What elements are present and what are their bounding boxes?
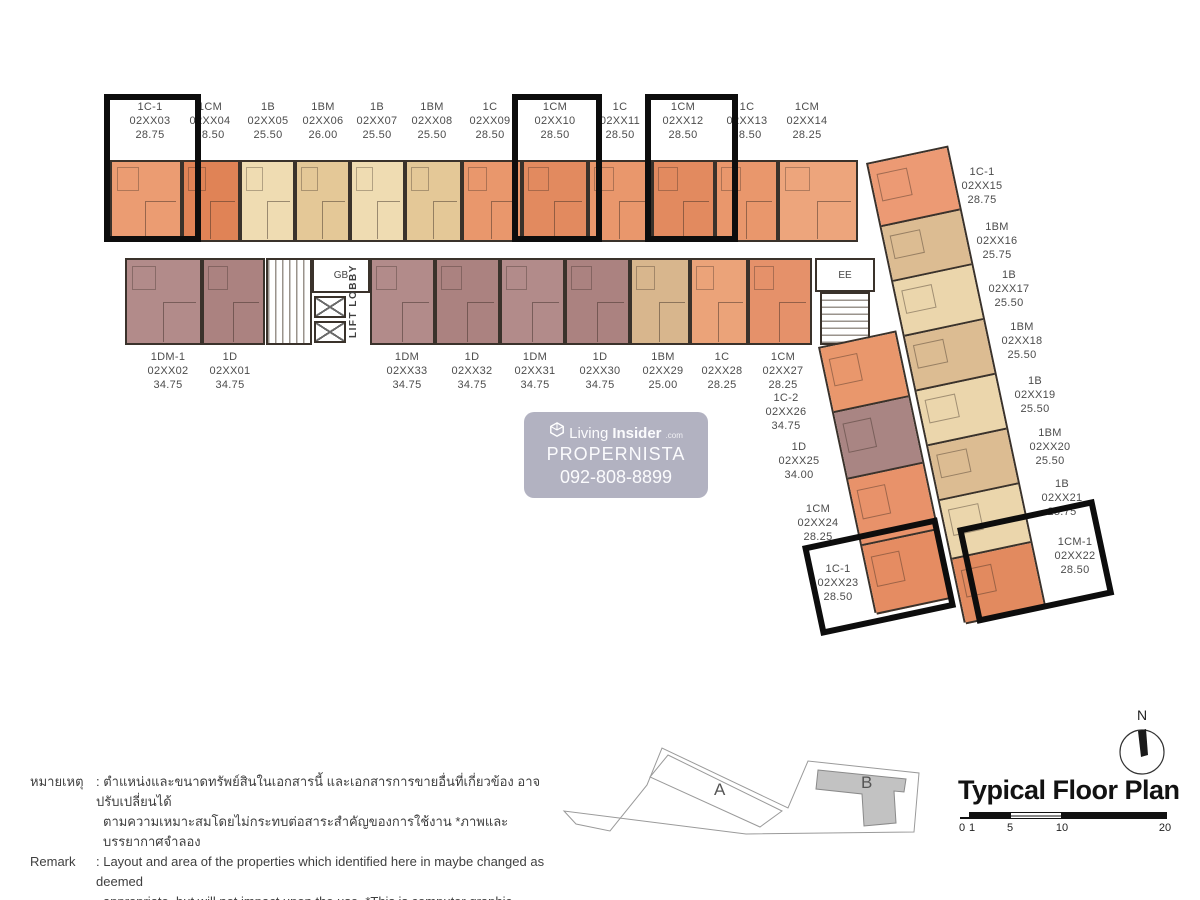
scale-tick: 20	[1159, 822, 1171, 834]
building-b-label: B	[861, 773, 872, 792]
unit-02XX02	[125, 258, 202, 345]
unit-area: 34.75	[210, 378, 251, 392]
unit-code: 02XX31	[515, 364, 556, 378]
highlight-box	[512, 94, 602, 242]
thai-note-line2: ตามความเหมาะสมโดยไม่กระทบต่อสาระสำคัญของ…	[96, 812, 550, 852]
unit-area: 25.50	[1015, 402, 1056, 416]
compass-icon	[1112, 722, 1172, 778]
unit-area: 34.75	[452, 378, 493, 392]
brand-bold: Insider	[612, 425, 661, 442]
unit-code: 02XX08	[412, 114, 453, 128]
unit-label-02XX19: 1B02XX1925.50	[1015, 374, 1056, 416]
unit-type: 1D	[452, 350, 493, 364]
remark-label: Remark	[30, 852, 96, 892]
unit-type: 1CM	[763, 350, 804, 364]
unit-area: 25.50	[357, 128, 398, 142]
unit-type: 1B	[1042, 477, 1083, 491]
unit-code: 02XX09	[470, 114, 511, 128]
watermark-logo: LivingInsider.com	[524, 422, 708, 442]
unit-type: 1BM	[1002, 320, 1043, 334]
unit-type: 1BM	[977, 220, 1018, 234]
remark-notes: หมายเหตุ : ตำแหน่งและขนาดทรัพย์สินในเอกส…	[30, 772, 550, 900]
remark-line1: : Layout and area of the properties whic…	[96, 852, 550, 892]
scale-tick: 0	[959, 822, 965, 834]
unit-code: 02XX32	[452, 364, 493, 378]
unit-label-02XX07: 1B02XX0725.50	[357, 100, 398, 142]
unit-02XX14	[778, 160, 858, 242]
watermark: LivingInsider.com PROPERNISTA 092-808-88…	[524, 412, 708, 498]
unit-code: 02XX25	[779, 454, 820, 468]
unit-label-02XX28: 1C02XX2828.25	[702, 350, 743, 392]
unit-code: 02XX19	[1015, 388, 1056, 402]
unit-type: 1BM	[412, 100, 453, 114]
watermark-line2: PROPERNISTA	[524, 444, 708, 465]
lift-lobby-label: LIFT LOBBY	[348, 258, 368, 345]
unit-area: 34.75	[515, 378, 556, 392]
unit-label-02XX18: 1BM02XX1825.50	[1002, 320, 1043, 362]
unit-area: 25.50	[989, 296, 1030, 310]
unit-code: 02XX17	[989, 282, 1030, 296]
scale-tick: 5	[1007, 822, 1013, 834]
unit-02XX28	[690, 258, 748, 345]
highlight-box	[104, 94, 201, 242]
brand-tld: .com	[666, 431, 683, 440]
unit-02XX33	[370, 258, 435, 345]
unit-area: 28.25	[763, 378, 804, 392]
scale-tick-labels: 0 1 5 10 20	[960, 822, 1167, 836]
unit-label-02XX01: 1D02XX0134.75	[210, 350, 251, 392]
unit-type: 1D	[779, 440, 820, 454]
remark-line2: appropriate, but will not impact upon th…	[96, 892, 550, 900]
unit-label-02XX15: 1C-102XX1528.75	[962, 165, 1003, 207]
unit-label-02XX26: 1C-202XX2634.75	[766, 391, 807, 433]
unit-code: 02XX29	[643, 364, 684, 378]
unit-02XX01	[202, 258, 265, 345]
north-label: N	[1112, 708, 1172, 722]
unit-area: 25.50	[1002, 348, 1043, 362]
unit-type: 1C	[702, 350, 743, 364]
unit-area: 34.75	[387, 378, 428, 392]
key-plan: A B	[556, 735, 936, 860]
unit-type: 1DM	[387, 350, 428, 364]
unit-label-02XX30: 1D02XX3034.75	[580, 350, 621, 392]
unit-area: 28.75	[962, 193, 1003, 207]
lift-shaft	[314, 296, 346, 318]
unit-label-02XX33: 1DM02XX3334.75	[387, 350, 428, 392]
ee-label: EE	[838, 270, 851, 281]
unit-label-02XX20: 1BM02XX2025.50	[1030, 426, 1071, 468]
gb-label: GB	[334, 270, 348, 281]
thai-note-label: หมายเหตุ	[30, 772, 96, 812]
unit-area: 25.50	[412, 128, 453, 142]
unit-code: 02XX15	[962, 179, 1003, 193]
ee-room: EE	[815, 258, 875, 292]
unit-02XX05	[240, 160, 295, 242]
scale-tick: 10	[1056, 822, 1068, 834]
unit-code: 02XX24	[798, 516, 839, 530]
scale-bar	[960, 812, 1167, 819]
unit-code: 02XX30	[580, 364, 621, 378]
unit-code: 02XX06	[303, 114, 344, 128]
unit-area: 28.25	[702, 378, 743, 392]
unit-02XX06	[295, 160, 350, 242]
unit-area: 34.75	[580, 378, 621, 392]
unit-code: 02XX33	[387, 364, 428, 378]
unit-area: 25.00	[643, 378, 684, 392]
unit-label-02XX05: 1B02XX0525.50	[248, 100, 289, 142]
unit-area: 28.50	[600, 128, 640, 142]
unit-code: 02XX02	[148, 364, 189, 378]
unit-type: 1CM	[798, 502, 839, 516]
unit-type: 1C	[600, 100, 640, 114]
unit-type: 1DM-1	[148, 350, 189, 364]
unit-code: 02XX20	[1030, 440, 1071, 454]
stairs-left	[266, 258, 312, 345]
page-title: Typical Floor Plan	[958, 775, 1188, 806]
unit-02XX31	[500, 258, 565, 345]
unit-area: 25.50	[248, 128, 289, 142]
unit-type: 1B	[357, 100, 398, 114]
unit-code: 02XX27	[763, 364, 804, 378]
unit-type: 1DM	[515, 350, 556, 364]
unit-label-02XX14: 1CM02XX1428.25	[787, 100, 828, 142]
floor-plan-page: GB LIFT LOBBY EE 1C-102XX0328.751CM02XX0…	[0, 0, 1200, 900]
unit-code: 02XX05	[248, 114, 289, 128]
unit-label-02XX02: 1DM-102XX0234.75	[148, 350, 189, 392]
unit-label-02XX17: 1B02XX1725.50	[989, 268, 1030, 310]
unit-type: 1B	[1015, 374, 1056, 388]
watermark-phone: 092-808-8899	[524, 467, 708, 488]
unit-label-02XX09: 1C02XX0928.50	[470, 100, 511, 142]
unit-label-02XX11: 1C02XX1128.50	[600, 100, 640, 142]
unit-code: 02XX14	[787, 114, 828, 128]
scale-tick: 1	[969, 822, 975, 834]
unit-label-02XX31: 1DM02XX3134.75	[515, 350, 556, 392]
unit-code: 02XX26	[766, 405, 807, 419]
unit-02XX08	[405, 160, 462, 242]
unit-area: 25.75	[977, 248, 1018, 262]
unit-type: 1D	[210, 350, 251, 364]
unit-code: 02XX18	[1002, 334, 1043, 348]
unit-type: 1CM	[787, 100, 828, 114]
unit-code: 02XX28	[702, 364, 743, 378]
unit-02XX30	[565, 258, 630, 345]
lift-shaft	[314, 321, 346, 343]
unit-02XX32	[435, 258, 500, 345]
unit-label-02XX08: 1BM02XX0825.50	[412, 100, 453, 142]
unit-area: 34.75	[148, 378, 189, 392]
unit-area: 28.50	[470, 128, 511, 142]
unit-type: 1BM	[1030, 426, 1071, 440]
unit-label-02XX29: 1BM02XX2925.00	[643, 350, 684, 392]
unit-02XX27	[748, 258, 812, 345]
unit-label-02XX32: 1D02XX3234.75	[452, 350, 493, 392]
unit-code: 02XX07	[357, 114, 398, 128]
unit-type: 1BM	[303, 100, 344, 114]
brand-light: Living	[569, 425, 608, 442]
unit-02XX07	[350, 160, 405, 242]
unit-type: 1D	[580, 350, 621, 364]
north-arrow: N	[1112, 708, 1172, 780]
unit-area: 26.00	[303, 128, 344, 142]
unit-type: 1B	[248, 100, 289, 114]
unit-code: 02XX01	[210, 364, 251, 378]
unit-area: 34.00	[779, 468, 820, 482]
highlight-box	[645, 94, 738, 242]
unit-type: 1C	[470, 100, 511, 114]
cube-icon	[549, 422, 565, 438]
unit-area: 28.25	[787, 128, 828, 142]
thai-note-line1: : ตำแหน่งและขนาดทรัพย์สินในเอกสารนี้ และ…	[96, 772, 550, 812]
unit-area: 25.50	[1030, 454, 1071, 468]
unit-area: 34.75	[766, 419, 807, 433]
unit-02XX29	[630, 258, 690, 345]
unit-label-02XX25: 1D02XX2534.00	[779, 440, 820, 482]
unit-label-02XX16: 1BM02XX1625.75	[977, 220, 1018, 262]
unit-type: 1C-1	[962, 165, 1003, 179]
unit-type: 1BM	[643, 350, 684, 364]
building-a-label: A	[714, 780, 726, 799]
unit-label-02XX27: 1CM02XX2728.25	[763, 350, 804, 392]
unit-type: 1C-2	[766, 391, 807, 405]
unit-code: 02XX11	[600, 114, 640, 128]
unit-code: 02XX16	[977, 234, 1018, 248]
unit-label-02XX24: 1CM02XX2428.25	[798, 502, 839, 544]
unit-label-02XX06: 1BM02XX0626.00	[303, 100, 344, 142]
unit-type: 1B	[989, 268, 1030, 282]
